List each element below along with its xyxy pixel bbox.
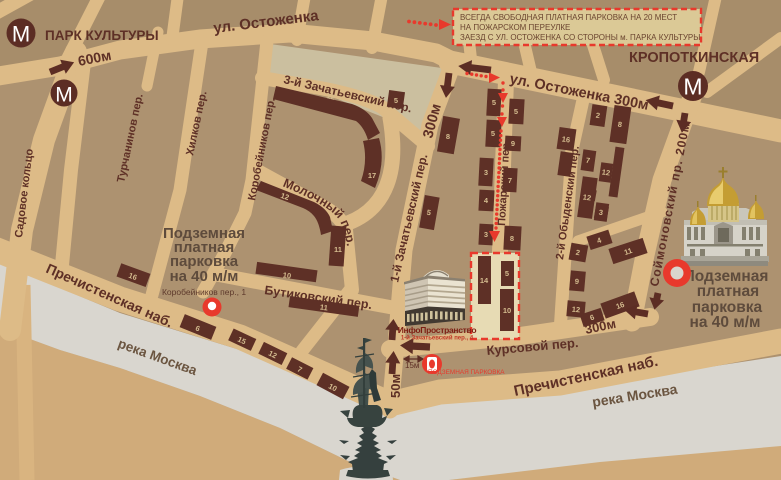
svg-text:8: 8 — [510, 234, 514, 243]
svg-text:ВСЕГДА СВОБОДНАЯ ПЛАТНАЯ ПАРКО: ВСЕГДА СВОБОДНАЯ ПЛАТНАЯ ПАРКОВКА НА 20 … — [460, 13, 677, 22]
svg-text:5: 5 — [505, 269, 509, 278]
svg-text:3: 3 — [484, 230, 488, 239]
svg-text:КРОПОТКИНСКАЯ: КРОПОТКИНСКАЯ — [629, 50, 759, 66]
svg-text:М: М — [683, 74, 702, 100]
svg-text:14: 14 — [480, 276, 489, 285]
svg-text:12: 12 — [601, 167, 611, 177]
svg-text:8: 8 — [446, 132, 450, 141]
svg-text:Коробейников пер., 1: Коробейников пер., 1 — [162, 287, 246, 297]
svg-text:12: 12 — [582, 192, 592, 202]
svg-text:3: 3 — [484, 168, 488, 177]
svg-text:М: М — [12, 22, 30, 47]
svg-text:НА ПОЖАРСКОМ ПЕРЕУЛКЕ: НА ПОЖАРСКОМ ПЕРЕУЛКЕ — [460, 23, 570, 32]
svg-text:15м: 15м — [405, 361, 419, 370]
svg-text:на 40 м/м: на 40 м/м — [689, 314, 760, 331]
svg-text:ПОДЗЕМНАЯ ПАРКОВКА: ПОДЗЕМНАЯ ПАРКОВКА — [428, 369, 505, 376]
svg-text:5: 5 — [514, 107, 518, 116]
svg-text:17: 17 — [368, 171, 376, 180]
svg-text:ЗАЕЗД С УЛ. ОСТОЖЕНКА СО СТОРО: ЗАЕЗД С УЛ. ОСТОЖЕНКА СО СТОРОНЫ м. ПАРК… — [460, 33, 700, 42]
svg-text:М: М — [55, 84, 73, 107]
svg-text:16: 16 — [561, 134, 571, 144]
svg-text:10: 10 — [282, 270, 292, 280]
svg-text:50м: 50м — [388, 374, 403, 398]
svg-text:платная: платная — [697, 283, 759, 300]
svg-text:9: 9 — [574, 277, 579, 286]
svg-text:ИнфоПространство: ИнфоПространство — [398, 325, 477, 335]
svg-text:на 40 м/м: на 40 м/м — [170, 268, 239, 285]
svg-text:10: 10 — [503, 306, 511, 315]
svg-text:5: 5 — [492, 98, 496, 107]
svg-text:12: 12 — [571, 305, 580, 315]
svg-text:ПАРК КУЛЬТУРЫ: ПАРК КУЛЬТУРЫ — [45, 28, 159, 43]
svg-text:5: 5 — [491, 129, 495, 138]
svg-text:11: 11 — [334, 245, 342, 254]
svg-text:1-й Зачатьевский пер., 4: 1-й Зачатьевский пер., 4 — [401, 335, 474, 342]
